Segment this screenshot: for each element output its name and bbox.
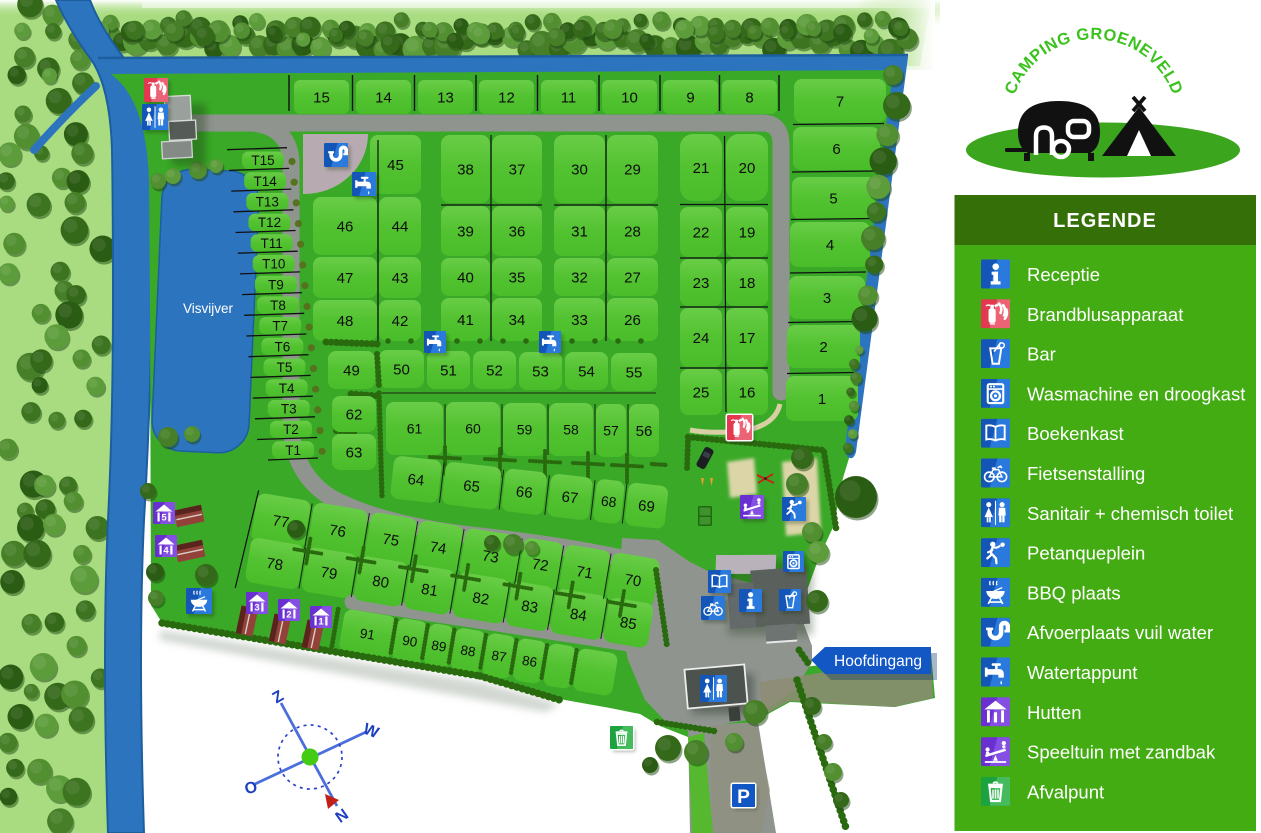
svg-text:39: 39 bbox=[457, 223, 474, 240]
svg-text:19: 19 bbox=[739, 224, 756, 241]
svg-text:15: 15 bbox=[313, 89, 330, 106]
svg-text:44: 44 bbox=[392, 218, 409, 235]
svg-text:42: 42 bbox=[392, 313, 409, 330]
svg-text:38: 38 bbox=[457, 161, 474, 178]
svg-text:53: 53 bbox=[532, 363, 549, 380]
svg-text:85: 85 bbox=[619, 614, 638, 634]
svg-text:79: 79 bbox=[319, 564, 338, 584]
svg-text:13: 13 bbox=[437, 89, 454, 106]
svg-text:89: 89 bbox=[430, 638, 447, 655]
svg-text:31: 31 bbox=[571, 223, 588, 240]
svg-text:3: 3 bbox=[254, 603, 259, 614]
svg-text:5: 5 bbox=[829, 190, 837, 207]
svg-text:43: 43 bbox=[392, 270, 409, 287]
svg-text:16: 16 bbox=[739, 384, 756, 401]
svg-text:21: 21 bbox=[693, 160, 710, 177]
svg-text:Hutten: Hutten bbox=[1027, 702, 1082, 723]
svg-text:LEGENDE: LEGENDE bbox=[1053, 210, 1157, 232]
svg-text:49: 49 bbox=[343, 362, 360, 379]
svg-text:68: 68 bbox=[600, 493, 617, 511]
svg-text:76: 76 bbox=[328, 522, 347, 542]
svg-text:71: 71 bbox=[575, 563, 594, 583]
svg-text:T4: T4 bbox=[279, 381, 295, 396]
svg-text:30: 30 bbox=[571, 161, 588, 178]
svg-text:65: 65 bbox=[462, 477, 481, 496]
svg-text:22: 22 bbox=[693, 224, 710, 241]
svg-text:Afvoerplaats vuil water: Afvoerplaats vuil water bbox=[1027, 622, 1213, 643]
svg-text:T12: T12 bbox=[258, 215, 281, 230]
svg-text:63: 63 bbox=[346, 444, 363, 461]
svg-text:T5: T5 bbox=[277, 360, 293, 375]
svg-text:36: 36 bbox=[509, 223, 526, 240]
svg-text:Afvalpunt: Afvalpunt bbox=[1027, 781, 1104, 802]
svg-text:26: 26 bbox=[624, 312, 641, 329]
svg-text:28: 28 bbox=[624, 223, 641, 240]
svg-text:88: 88 bbox=[459, 642, 476, 659]
svg-text:2: 2 bbox=[286, 610, 291, 621]
svg-text:Watertappunt: Watertappunt bbox=[1027, 662, 1137, 683]
svg-text:1: 1 bbox=[818, 391, 826, 408]
svg-text:29: 29 bbox=[624, 161, 641, 178]
svg-text:23: 23 bbox=[693, 275, 710, 292]
svg-text:BBQ plaats: BBQ plaats bbox=[1027, 582, 1121, 603]
svg-text:Hoofdingang: Hoofdingang bbox=[834, 653, 922, 670]
svg-text:54: 54 bbox=[578, 363, 595, 380]
svg-text:40: 40 bbox=[457, 269, 474, 286]
svg-text:T10: T10 bbox=[262, 257, 285, 272]
svg-text:72: 72 bbox=[530, 556, 549, 576]
svg-text:56: 56 bbox=[636, 423, 653, 440]
svg-text:T15: T15 bbox=[251, 153, 274, 168]
svg-text:87: 87 bbox=[490, 648, 507, 665]
svg-text:24: 24 bbox=[693, 330, 710, 347]
svg-text:66: 66 bbox=[515, 483, 534, 502]
svg-text:5: 5 bbox=[161, 513, 167, 524]
svg-text:58: 58 bbox=[563, 422, 579, 438]
svg-text:2: 2 bbox=[819, 339, 827, 356]
svg-text:83: 83 bbox=[520, 597, 539, 617]
svg-text:Receptie: Receptie bbox=[1027, 264, 1100, 285]
svg-text:51: 51 bbox=[440, 362, 457, 379]
svg-text:20: 20 bbox=[739, 160, 756, 177]
svg-text:4: 4 bbox=[826, 237, 834, 254]
svg-text:61: 61 bbox=[407, 421, 423, 437]
svg-text:Petanqueplein: Petanqueplein bbox=[1027, 543, 1145, 564]
svg-text:7: 7 bbox=[836, 93, 844, 110]
svg-text:74: 74 bbox=[428, 539, 447, 559]
svg-text:33: 33 bbox=[571, 312, 588, 329]
svg-text:80: 80 bbox=[371, 573, 390, 593]
svg-text:67: 67 bbox=[561, 489, 580, 508]
svg-text:69: 69 bbox=[637, 497, 656, 516]
svg-text:59: 59 bbox=[517, 422, 533, 438]
svg-text:81: 81 bbox=[420, 581, 439, 601]
svg-text:52: 52 bbox=[486, 362, 503, 379]
svg-text:48: 48 bbox=[337, 313, 354, 330]
svg-text:T1: T1 bbox=[285, 443, 301, 458]
svg-text:T11: T11 bbox=[260, 236, 282, 251]
svg-text:T8: T8 bbox=[270, 298, 286, 313]
svg-text:Wasmachine en droogkast: Wasmachine en droogkast bbox=[1027, 383, 1245, 404]
svg-text:50: 50 bbox=[393, 361, 410, 378]
svg-text:27: 27 bbox=[624, 269, 641, 286]
svg-text:47: 47 bbox=[337, 270, 354, 287]
svg-text:Fietsenstalling: Fietsenstalling bbox=[1027, 463, 1145, 484]
svg-text:86: 86 bbox=[521, 653, 538, 670]
svg-text:3: 3 bbox=[823, 290, 831, 307]
svg-text:11: 11 bbox=[561, 89, 577, 106]
svg-text:18: 18 bbox=[739, 275, 756, 292]
svg-text:91: 91 bbox=[359, 626, 376, 643]
svg-text:T6: T6 bbox=[274, 339, 290, 354]
svg-text:T9: T9 bbox=[268, 277, 284, 292]
svg-text:62: 62 bbox=[346, 406, 363, 423]
svg-text:14: 14 bbox=[375, 89, 392, 106]
svg-text:34: 34 bbox=[509, 312, 526, 329]
svg-text:78: 78 bbox=[265, 555, 284, 575]
svg-text:45: 45 bbox=[387, 157, 404, 174]
svg-text:Bar: Bar bbox=[1027, 344, 1056, 365]
svg-text:84: 84 bbox=[569, 606, 588, 626]
svg-text:T14: T14 bbox=[254, 174, 278, 189]
svg-text:64: 64 bbox=[407, 471, 426, 490]
svg-text:37: 37 bbox=[509, 161, 526, 178]
svg-text:55: 55 bbox=[626, 364, 643, 381]
svg-text:75: 75 bbox=[381, 531, 400, 551]
svg-text:Brandblusapparaat: Brandblusapparaat bbox=[1027, 304, 1183, 325]
svg-text:1: 1 bbox=[318, 617, 324, 628]
svg-text:41: 41 bbox=[457, 312, 474, 329]
svg-text:12: 12 bbox=[498, 89, 515, 106]
svg-text:T7: T7 bbox=[272, 319, 288, 334]
svg-text:Boekenkast: Boekenkast bbox=[1027, 423, 1124, 444]
svg-text:T13: T13 bbox=[256, 195, 279, 210]
svg-text:8: 8 bbox=[745, 89, 753, 106]
svg-text:4: 4 bbox=[163, 546, 169, 557]
svg-text:T3: T3 bbox=[281, 402, 297, 417]
svg-text:17: 17 bbox=[739, 330, 756, 347]
svg-text:90: 90 bbox=[401, 633, 418, 650]
svg-text:82: 82 bbox=[471, 589, 490, 609]
svg-text:Visvijver: Visvijver bbox=[183, 301, 234, 316]
svg-text:46: 46 bbox=[337, 218, 354, 235]
svg-text:10: 10 bbox=[621, 89, 638, 106]
svg-text:57: 57 bbox=[603, 423, 619, 439]
svg-text:70: 70 bbox=[623, 571, 642, 591]
svg-text:25: 25 bbox=[693, 384, 710, 401]
svg-text:32: 32 bbox=[571, 269, 588, 286]
svg-text:T2: T2 bbox=[283, 422, 299, 437]
svg-text:60: 60 bbox=[465, 421, 481, 437]
svg-text:Speeltuin met zandbak: Speeltuin met zandbak bbox=[1027, 742, 1216, 763]
svg-text:6: 6 bbox=[832, 141, 840, 158]
svg-text:Sanitair + chemisch toilet: Sanitair + chemisch toilet bbox=[1027, 503, 1233, 524]
svg-text:9: 9 bbox=[686, 89, 694, 106]
svg-text:35: 35 bbox=[509, 269, 526, 286]
